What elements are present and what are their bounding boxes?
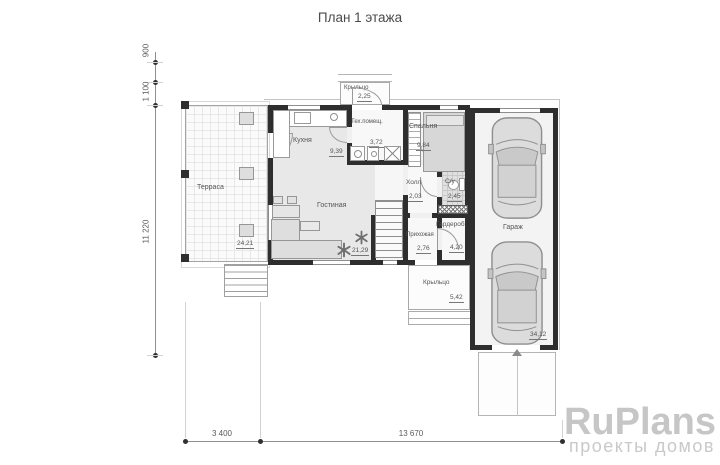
room-label-hall: Холл <box>406 180 421 187</box>
roof-line <box>559 99 560 350</box>
driveway-line <box>517 352 518 416</box>
window <box>313 260 350 265</box>
room-area-bathroom: 2,45 <box>447 193 462 202</box>
dimension-line-bottom <box>183 441 563 442</box>
floor-plan-page: План 1 этажа Терраса 24,21 Крыльцо 2,25 <box>0 0 720 465</box>
shaft-icon <box>384 146 401 161</box>
dining-chair <box>287 196 297 204</box>
dimension-label: 11 220 <box>142 212 151 252</box>
window <box>440 105 458 110</box>
terrace-post <box>181 101 189 109</box>
wall <box>403 195 408 265</box>
room-label-kitchen: Кухня <box>293 137 312 144</box>
room-label-tech: Тех.помещ. <box>351 119 383 125</box>
boiler-icon <box>367 146 379 161</box>
dimension-label: 1 100 <box>142 75 151 109</box>
vent-shaft <box>438 205 468 214</box>
car-icon <box>488 116 546 220</box>
porch-top-steps <box>338 74 392 82</box>
room-area-kitchen: 9,39 <box>329 148 344 157</box>
room-label-living: Гостиная <box>317 202 346 209</box>
toilet-icon <box>459 178 465 191</box>
wall <box>403 213 410 218</box>
wall <box>470 108 475 350</box>
room-label-bathroom: С/у <box>445 179 455 186</box>
dimension-line-left <box>155 52 156 358</box>
door-leaf <box>329 127 347 128</box>
stove-icon <box>330 113 338 121</box>
terrace-chair <box>239 167 254 180</box>
coffee-table <box>300 221 320 231</box>
dining-chair <box>273 196 283 204</box>
watermark-tagline: проекты домов <box>569 437 715 455</box>
door-leaf <box>352 87 353 105</box>
room-label-bedroom: Спальня <box>409 123 437 130</box>
room-area-tech: 3,72 <box>369 139 384 148</box>
room-label-garage: Гараж <box>503 224 523 231</box>
room-area-living: 21,29 <box>351 247 369 256</box>
room-label-porch-bottom: Крыльцо <box>423 280 450 287</box>
driveway-arrow-icon <box>512 349 522 356</box>
room-area-entry: 2,76 <box>416 245 431 254</box>
terrace-post <box>181 254 189 262</box>
dimension-label: 13 670 <box>381 429 441 438</box>
extension-line <box>185 302 186 438</box>
room-area-garage: 34,12 <box>529 331 547 340</box>
sink-icon <box>294 112 311 124</box>
window <box>383 260 397 265</box>
extension-line <box>147 355 163 356</box>
room-label-entry: Прихожая <box>406 232 434 238</box>
washer-icon <box>350 146 365 161</box>
plant-icon <box>336 242 352 258</box>
room-area-porch-bottom: 5,42 <box>449 294 464 303</box>
room-area-wardrobe: 4,20 <box>449 244 464 253</box>
door-leaf <box>437 228 438 250</box>
page-title: План 1 этажа <box>0 10 720 25</box>
dimension-tick <box>183 439 188 444</box>
window <box>500 108 540 113</box>
kitchen-counter <box>273 110 290 158</box>
room-label-terrace: Терраса <box>197 184 224 191</box>
extension-line <box>260 302 261 438</box>
wardrobe-shelves <box>408 112 421 167</box>
room-label-wardrobe: Гардероб <box>436 222 465 229</box>
dimension-label: 3 400 <box>192 429 252 438</box>
dining-table <box>272 205 300 218</box>
terrace-steps <box>224 264 268 297</box>
sofa-icon <box>271 240 342 259</box>
dimension-tick <box>258 439 263 444</box>
terrace-chair <box>239 224 254 237</box>
staircase <box>375 200 403 258</box>
roof-line <box>264 99 560 100</box>
room-area-terrace: 24,21 <box>236 240 254 249</box>
terrace-chair <box>239 112 254 125</box>
dimension-label: 900 <box>142 34 151 68</box>
room-area-bedroom: 9,84 <box>416 142 431 151</box>
room-area-hall: 2,03 <box>408 193 423 202</box>
wall <box>553 108 558 350</box>
plant-icon <box>354 230 369 245</box>
porch-bottom-box <box>408 265 470 310</box>
wall <box>437 250 442 265</box>
terrace-post <box>181 170 189 178</box>
extension-line <box>562 420 563 438</box>
